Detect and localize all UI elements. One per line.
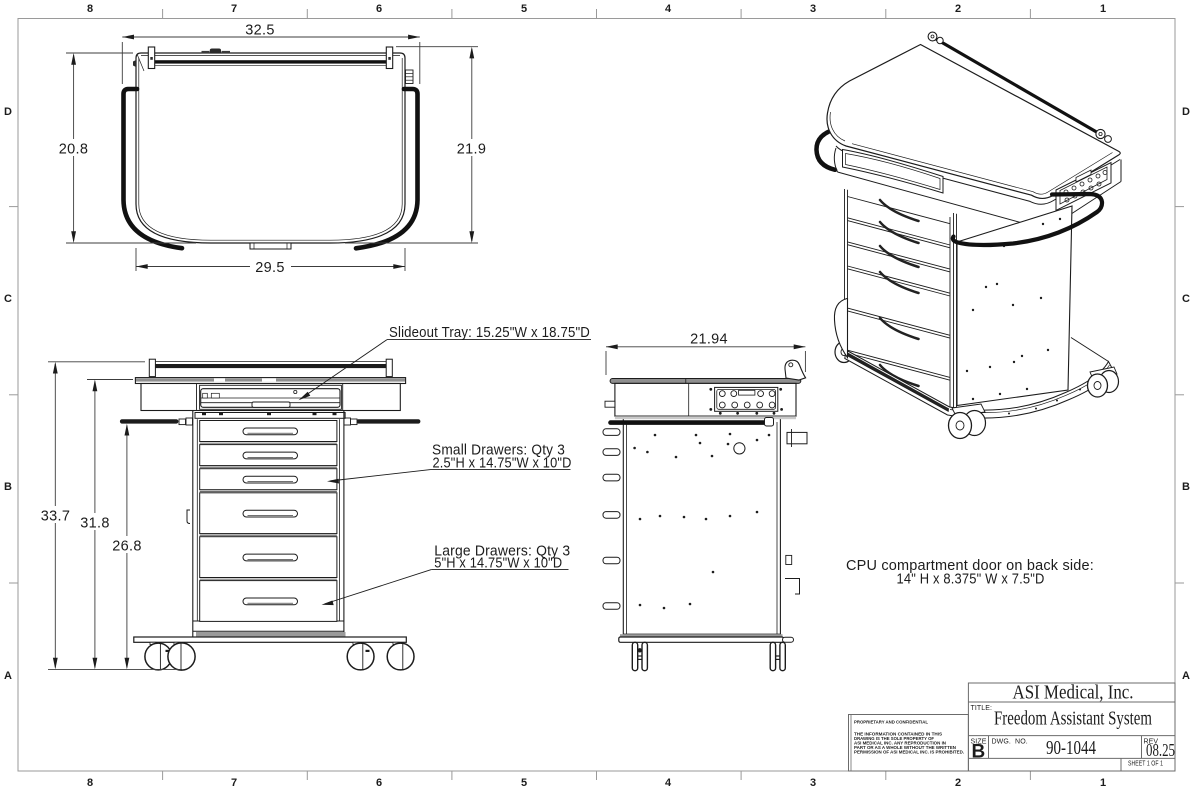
svg-text:A: A [4, 670, 12, 682]
svg-text:6: 6 [376, 3, 382, 15]
svg-text:6: 6 [376, 777, 382, 789]
svg-text:A: A [1182, 670, 1190, 682]
svg-text:2: 2 [955, 777, 961, 789]
svg-text:Slideout Tray: 15.25"W x 18.75: Slideout Tray: 15.25"W x 18.75"D [389, 324, 590, 341]
svg-text:26.8: 26.8 [112, 539, 141, 555]
svg-text:5"H x 14.75"W x 10"D: 5"H x 14.75"W x 10"D [434, 554, 562, 571]
svg-text:B: B [1182, 481, 1190, 493]
svg-text:D: D [1182, 106, 1190, 118]
svg-text:21.9: 21.9 [457, 142, 486, 158]
svg-text:5: 5 [521, 777, 527, 789]
svg-text:08.25: 08.25 [1146, 740, 1175, 760]
svg-text:29.5: 29.5 [255, 260, 284, 276]
svg-text:ASI Medical, Inc.: ASI Medical, Inc. [1013, 682, 1134, 704]
svg-text:90-1044: 90-1044 [1046, 738, 1096, 759]
svg-text:14" H x 8.375" W x 7.5"D: 14" H x 8.375" W x 7.5"D [897, 571, 1045, 588]
svg-text:8: 8 [87, 777, 93, 789]
svg-text:31.8: 31.8 [80, 516, 109, 532]
svg-text:B: B [972, 742, 986, 763]
svg-text:33.7: 33.7 [41, 509, 70, 525]
svg-text:2: 2 [955, 3, 961, 15]
svg-text:TITLE:: TITLE: [971, 705, 993, 712]
svg-text:1: 1 [1100, 3, 1106, 15]
svg-text:1: 1 [1100, 777, 1106, 789]
svg-text:4: 4 [665, 3, 672, 15]
svg-text:20.8: 20.8 [59, 142, 88, 158]
svg-text:DWG. NO.: DWG. NO. [992, 739, 1028, 746]
svg-text:PROPRIETARY AND CONFIDENTIAL: PROPRIETARY AND CONFIDENTIAL [854, 720, 928, 725]
svg-text:B: B [4, 481, 12, 493]
svg-text:2.5"H x 14.75"W x 10"D: 2.5"H x 14.75"W x 10"D [433, 454, 572, 471]
svg-text:C: C [4, 293, 12, 305]
svg-text:Freedom Assistant System: Freedom Assistant System [994, 708, 1152, 730]
svg-text:7: 7 [231, 777, 237, 789]
svg-text:SHEET 1 OF 1: SHEET 1 OF 1 [1128, 761, 1163, 768]
svg-text:32.5: 32.5 [245, 23, 274, 39]
svg-text:PERMISSION OF ASI MEDICAL INC.: PERMISSION OF ASI MEDICAL INC. IS PROHIB… [854, 750, 964, 755]
svg-text:5: 5 [521, 3, 527, 15]
svg-text:7: 7 [231, 3, 237, 15]
svg-text:21.94: 21.94 [690, 332, 728, 348]
svg-text:D: D [4, 106, 12, 118]
svg-text:4: 4 [665, 777, 672, 789]
svg-text:8: 8 [87, 3, 93, 15]
svg-text:3: 3 [810, 3, 816, 15]
svg-text:C: C [1182, 293, 1190, 305]
svg-text:3: 3 [810, 777, 816, 789]
